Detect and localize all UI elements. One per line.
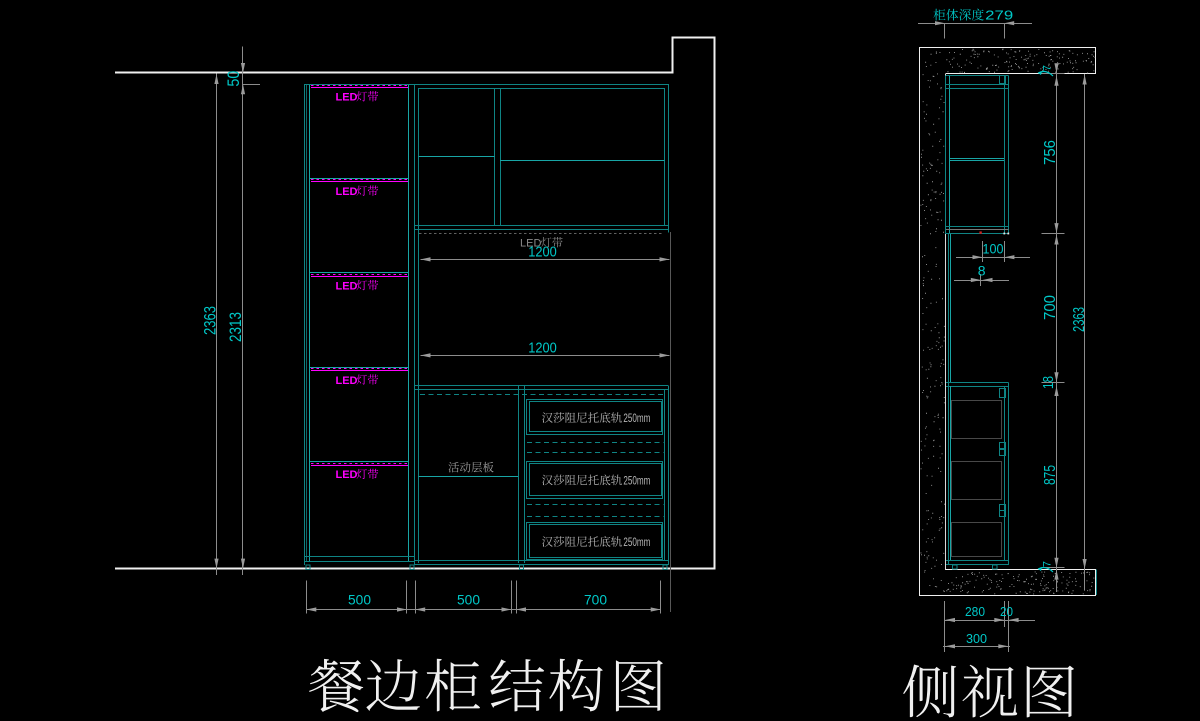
svg-text:7: 7 — [1042, 561, 1054, 567]
svg-text:250mm: 250mm — [623, 412, 650, 425]
svg-text:7: 7 — [1042, 65, 1054, 71]
svg-text:LED: LED — [336, 375, 358, 387]
svg-text:2363: 2363 — [1071, 307, 1088, 332]
svg-text:300: 300 — [966, 632, 987, 646]
svg-text:2363: 2363 — [200, 306, 219, 335]
svg-text:250mm: 250mm — [623, 536, 650, 549]
svg-text:1200: 1200 — [528, 245, 557, 261]
svg-text:250mm: 250mm — [623, 474, 650, 487]
svg-text:LED: LED — [336, 280, 358, 292]
svg-text:279: 279 — [985, 8, 1013, 23]
svg-text:LED: LED — [336, 186, 358, 198]
svg-text:1200: 1200 — [528, 341, 557, 357]
svg-text:280: 280 — [965, 605, 985, 619]
svg-text:100: 100 — [983, 240, 1004, 256]
svg-text:50: 50 — [224, 71, 243, 87]
svg-text:LED: LED — [336, 92, 358, 104]
svg-text:2313: 2313 — [226, 312, 245, 342]
svg-text:756: 756 — [1042, 140, 1059, 165]
svg-text:700: 700 — [1042, 295, 1059, 320]
svg-text:18: 18 — [1040, 376, 1057, 389]
svg-text:875: 875 — [1042, 465, 1059, 485]
svg-text:700: 700 — [584, 592, 607, 608]
svg-text:8: 8 — [978, 263, 986, 279]
svg-text:20: 20 — [1000, 605, 1013, 619]
svg-text:LED: LED — [336, 469, 358, 481]
svg-text:500: 500 — [348, 592, 371, 608]
svg-text:500: 500 — [457, 592, 480, 608]
